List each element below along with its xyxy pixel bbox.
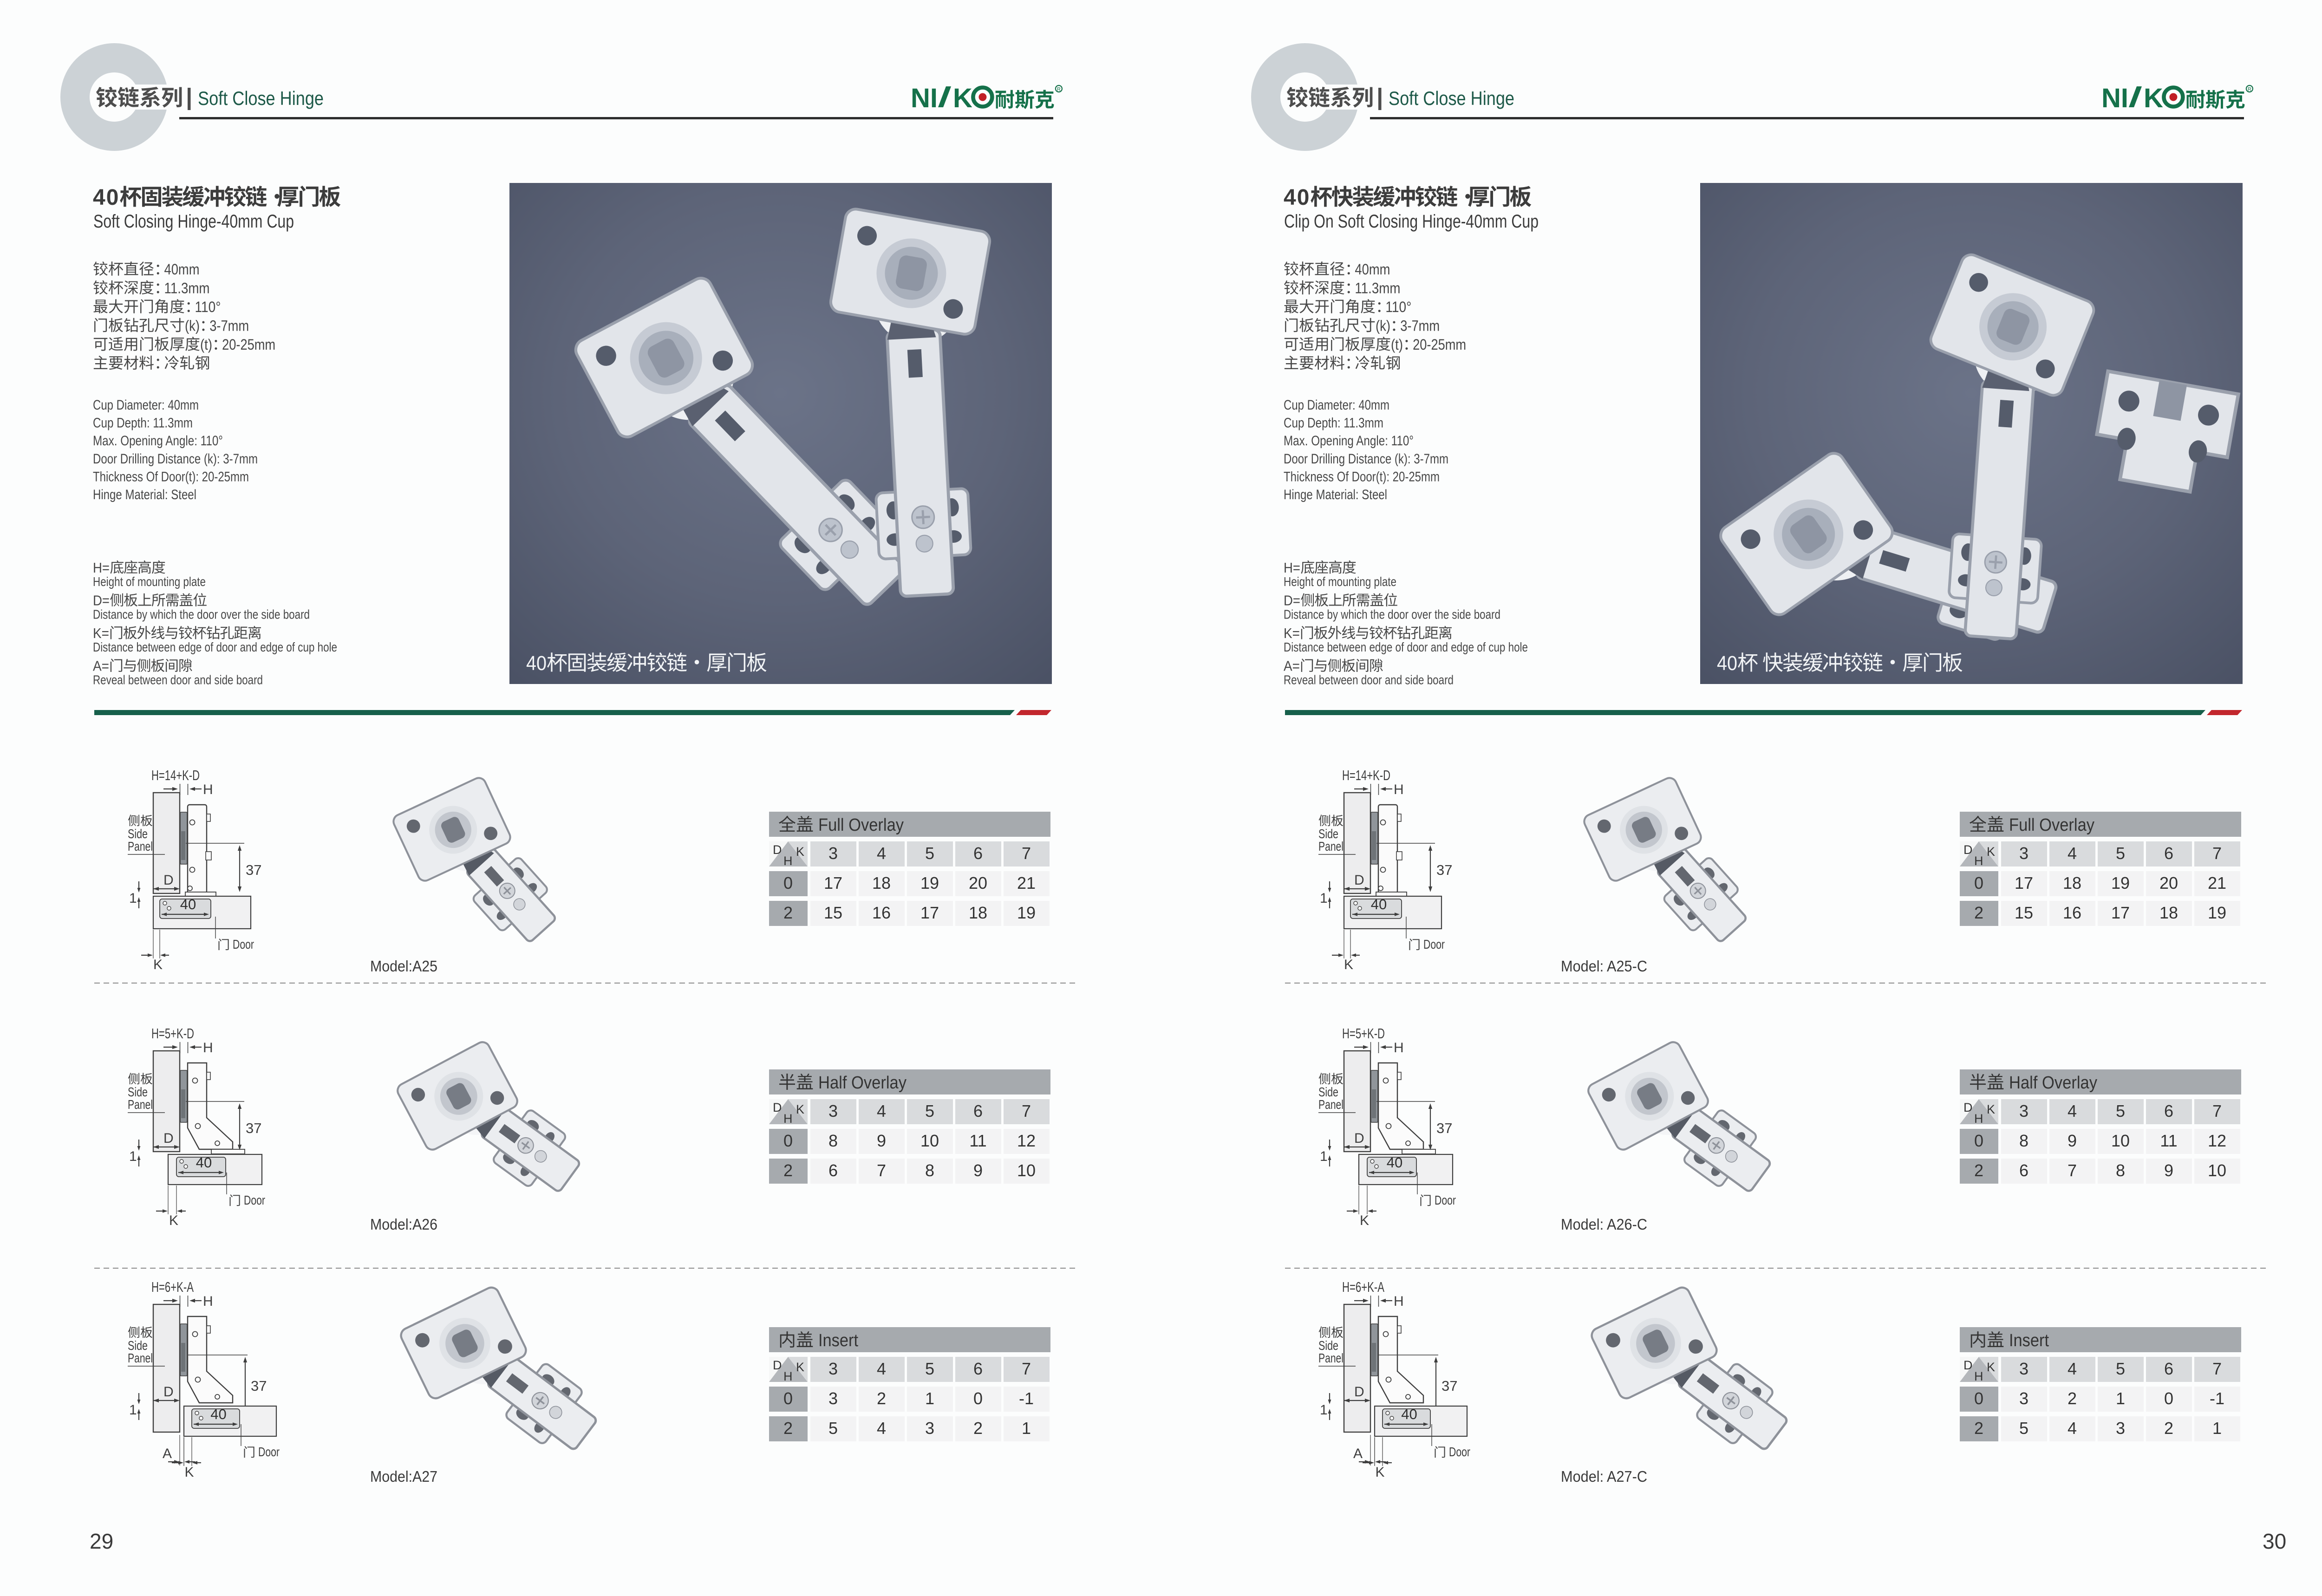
svg-text:19: 19 [2111,873,2130,892]
svg-text:5: 5 [925,1359,934,1378]
svg-text:3: 3 [2019,1101,2028,1120]
svg-text:6: 6 [973,1359,983,1378]
svg-text:10: 10 [1017,1161,1036,1180]
svg-text:Cup Diameter: 40mm: Cup Diameter: 40mm [1284,397,1389,413]
svg-text:2: 2 [783,1161,793,1180]
svg-text:5: 5 [828,1419,838,1438]
svg-text:Half Overlay: Half Overlay [2009,1073,2097,1093]
svg-text:20: 20 [969,873,987,892]
svg-text:0: 0 [1974,1131,1983,1150]
svg-text:40: 40 [180,896,196,912]
svg-text:H: H [783,854,793,868]
svg-text:H: H [203,1040,213,1055]
svg-text:0: 0 [1974,873,1983,892]
svg-text:0: 0 [973,1389,983,1408]
svg-text:Soft Close Hinge: Soft Close Hinge [198,87,324,109]
svg-text:Distance by which the door ove: Distance by which the door over the side… [93,607,310,622]
svg-text:Distance by which the door ove: Distance by which the door over the side… [1284,607,1500,622]
svg-text:H: H [1974,1369,1983,1383]
svg-text:10: 10 [920,1131,939,1150]
svg-text:3-7mm: 3-7mm [1400,318,1440,334]
svg-text:6: 6 [828,1161,838,1180]
svg-text:9: 9 [2164,1161,2173,1180]
svg-text:37: 37 [1441,1378,1457,1394]
svg-text:17: 17 [2111,903,2130,922]
svg-text:K: K [153,957,163,972]
svg-text:K: K [169,1213,178,1228]
svg-text:1: 1 [1320,1402,1328,1418]
svg-text:37: 37 [251,1378,267,1394]
svg-text:4: 4 [2068,1419,2077,1438]
svg-text:7: 7 [877,1161,886,1180]
svg-text:15: 15 [2015,903,2033,922]
svg-text:Distance between edge of door: Distance between edge of door and edge o… [1284,640,1528,654]
svg-text:(k): (k) [185,318,200,334]
svg-text:A: A [163,1446,172,1461]
svg-text:D: D [1963,1358,1973,1372]
svg-text:8: 8 [2019,1131,2028,1150]
svg-text:40: 40 [1401,1406,1417,1422]
svg-text:3: 3 [828,1389,838,1408]
svg-text:21: 21 [2208,873,2226,892]
svg-text:Soft Close Hinge: Soft Close Hinge [1389,87,1514,109]
svg-text:1: 1 [925,1389,934,1408]
svg-text:K: K [796,1102,804,1116]
svg-text:A=: A= [1284,658,1300,674]
svg-text:D=: D= [1284,593,1300,609]
svg-text:7: 7 [2212,844,2222,863]
svg-text:Panel: Panel [128,839,153,853]
svg-text:0: 0 [783,873,793,892]
svg-text:H=: H= [1284,560,1300,576]
svg-text:8: 8 [828,1131,838,1150]
svg-text:H: H [1974,854,1983,868]
svg-text:5: 5 [2116,1101,2125,1120]
svg-text:K: K [1987,1360,1995,1374]
svg-text:11.3mm: 11.3mm [164,280,210,297]
svg-text:2: 2 [2164,1419,2173,1438]
svg-text:Insert: Insert [818,1331,858,1350]
svg-text:H: H [783,1369,793,1383]
svg-text:11.3mm: 11.3mm [1355,280,1400,297]
svg-text:110°: 110° [195,299,221,315]
svg-text:1: 1 [129,891,137,906]
svg-text:40mm: 40mm [1355,261,1390,278]
svg-text:H=: H= [93,560,110,576]
svg-text:9: 9 [877,1131,886,1150]
svg-text:18: 18 [2063,873,2081,892]
svg-text:H: H [1394,782,1404,797]
svg-text:Distance between edge of door: Distance between edge of door and edge o… [93,640,337,654]
svg-text:Full Overlay: Full Overlay [2009,815,2094,835]
svg-text:Panel: Panel [1318,839,1344,853]
svg-text:Hinge Material: Steel: Hinge Material: Steel [93,487,196,502]
svg-text:6: 6 [973,844,983,863]
svg-text:4: 4 [877,1419,886,1438]
svg-text:17: 17 [2015,873,2033,892]
svg-text:(t): (t) [200,336,212,353]
svg-text:2: 2 [2068,1389,2077,1408]
svg-text:40: 40 [1371,896,1387,912]
svg-text:21: 21 [1017,873,1036,892]
svg-text:19: 19 [1017,903,1036,922]
svg-text:Door: Door [244,1193,265,1207]
svg-text:1: 1 [2212,1419,2222,1438]
svg-text:4: 4 [877,844,886,863]
svg-text:Door: Door [1449,1445,1470,1459]
svg-text:19: 19 [920,873,939,892]
svg-text:H=5+K-D: H=5+K-D [151,1025,194,1042]
svg-text:D: D [1963,843,1973,857]
svg-text:9: 9 [2068,1131,2077,1150]
svg-text:Panel: Panel [128,1097,153,1112]
svg-text:K: K [953,83,972,113]
svg-text:H: H [203,1294,213,1309]
svg-text:1: 1 [2116,1389,2125,1408]
svg-text:H: H [1394,1040,1404,1055]
svg-text:20: 20 [2159,873,2178,892]
svg-text:20-25mm: 20-25mm [1413,336,1466,353]
svg-text:-1: -1 [1019,1389,1034,1408]
svg-text:K: K [796,1360,804,1374]
svg-text:2: 2 [1974,1419,1983,1438]
svg-text:Thickness Of Door(t): 20-25mm: Thickness Of Door(t): 20-25mm [93,469,249,484]
svg-text:NI: NI [911,83,938,113]
svg-text:12: 12 [1017,1131,1036,1150]
svg-text:D: D [773,1358,782,1372]
svg-text:1: 1 [1320,891,1328,906]
svg-text:3: 3 [828,1359,838,1378]
svg-text:A=: A= [93,658,109,674]
svg-text:9: 9 [973,1161,983,1180]
svg-text:Thickness Of Door(t): 20-25mm: Thickness Of Door(t): 20-25mm [1284,469,1440,484]
svg-text:A: A [1353,1446,1363,1461]
svg-text:5: 5 [925,844,934,863]
svg-text:5: 5 [2116,844,2125,863]
svg-text:3: 3 [2019,1359,2028,1378]
svg-text:D: D [163,873,174,888]
svg-text:Clip On Soft Closing Hinge-40m: Clip On Soft Closing Hinge-40mm Cup [1284,211,1539,232]
svg-text:H=6+K-A: H=6+K-A [1342,1279,1384,1295]
svg-text:3: 3 [828,844,838,863]
svg-text:3: 3 [2019,844,2028,863]
svg-text:40: 40 [1387,1154,1402,1171]
svg-text:5: 5 [2019,1419,2028,1438]
svg-text:Cup Depth: 11.3mm: Cup Depth: 11.3mm [1284,416,1383,431]
svg-text:K: K [185,1465,194,1480]
svg-text:K: K [1360,1213,1369,1228]
svg-text:40: 40 [1284,185,1310,210]
svg-text:7: 7 [2212,1101,2222,1120]
svg-text:0: 0 [783,1131,793,1150]
svg-text:37: 37 [1436,862,1452,878]
svg-text:4: 4 [2068,844,2077,863]
svg-text:1: 1 [1022,1419,1031,1438]
svg-text:40: 40 [196,1154,212,1171]
svg-text:Door Drilling Distance (k): 3-: Door Drilling Distance (k): 3-7mm [93,451,258,467]
svg-text:(t): (t) [1391,336,1403,353]
svg-text:18: 18 [2159,903,2178,922]
svg-text:Model:A27: Model:A27 [370,1468,437,1485]
svg-text:40: 40 [210,1406,226,1422]
svg-text:Panel: Panel [128,1351,153,1365]
svg-text:H=6+K-A: H=6+K-A [151,1279,194,1295]
svg-text:Max. Opening Angle: 110°: Max. Opening Angle: 110° [1284,433,1414,449]
svg-text:37: 37 [246,862,261,878]
svg-text:H=5+K-D: H=5+K-D [1342,1025,1385,1042]
svg-text:(k): (k) [1376,318,1390,334]
svg-text:37: 37 [1436,1120,1452,1136]
svg-text:Model: A25-C: Model: A25-C [1561,958,1647,975]
svg-text:3: 3 [2116,1419,2125,1438]
svg-text:D: D [1963,1101,1973,1114]
svg-text:4: 4 [2068,1359,2077,1378]
svg-text:8: 8 [2116,1161,2125,1180]
svg-text:K=: K= [1284,625,1300,641]
svg-text:K: K [1376,1465,1385,1480]
svg-text:K: K [2144,83,2163,113]
svg-text:6: 6 [2164,1359,2173,1378]
svg-text:1: 1 [129,1402,137,1418]
svg-text:1: 1 [129,1149,137,1164]
svg-text:110°: 110° [1385,299,1411,315]
svg-text:Hinge Material: Steel: Hinge Material: Steel [1284,487,1387,502]
svg-text:17: 17 [920,903,939,922]
svg-text:Door: Door [258,1445,280,1459]
svg-text:D: D [163,1131,174,1146]
svg-text:Model: A26-C: Model: A26-C [1561,1216,1647,1233]
svg-text:D: D [163,1384,174,1400]
svg-text:H: H [1974,1112,1983,1126]
svg-text:2: 2 [877,1389,886,1408]
svg-text:40mm: 40mm [164,261,200,278]
svg-text:7: 7 [1022,1101,1031,1120]
svg-text:D: D [773,1101,782,1114]
svg-text:D: D [1354,873,1364,888]
svg-text:2: 2 [1974,1161,1983,1180]
svg-text:12: 12 [2208,1131,2226,1150]
svg-text:4: 4 [2068,1101,2077,1120]
svg-text:7: 7 [2068,1161,2077,1180]
svg-text:16: 16 [2063,903,2081,922]
svg-text:Door Drilling Distance (k): 3-: Door Drilling Distance (k): 3-7mm [1284,451,1448,467]
svg-text:Insert: Insert [2009,1331,2049,1350]
svg-text:7: 7 [2212,1359,2222,1378]
svg-text:11: 11 [2160,1131,2177,1150]
svg-text:0: 0 [1974,1389,1983,1408]
svg-text:Soft Closing Hinge-40mm Cup: Soft Closing Hinge-40mm Cup [93,211,294,232]
svg-text:17: 17 [824,873,842,892]
svg-text:NI: NI [2101,83,2128,113]
svg-text:H: H [203,782,213,797]
svg-text:Door: Door [1423,937,1445,951]
svg-text:4: 4 [877,1359,886,1378]
svg-text:Panel: Panel [1318,1097,1344,1112]
svg-text:Half Overlay: Half Overlay [818,1073,907,1093]
svg-text:K: K [1987,845,1995,859]
svg-text:3-7mm: 3-7mm [209,318,249,334]
svg-text:K: K [1987,1102,1995,1116]
svg-text:4: 4 [877,1101,886,1120]
svg-text:15: 15 [824,903,842,922]
svg-text:5: 5 [925,1101,934,1120]
svg-text:6: 6 [2164,1101,2173,1120]
svg-text:5: 5 [2116,1359,2125,1378]
svg-text:3: 3 [2019,1389,2028,1408]
svg-text:3: 3 [828,1101,838,1120]
svg-text:19: 19 [2208,903,2226,922]
svg-text:40: 40 [1717,652,1737,675]
svg-text:30: 30 [2263,1529,2286,1553]
svg-text:D: D [773,843,782,857]
svg-text:3: 3 [925,1419,934,1438]
svg-text:18: 18 [872,873,891,892]
svg-text:K: K [796,845,804,859]
svg-text:6: 6 [2019,1161,2028,1180]
svg-text:Height of mounting plate: Height of mounting plate [93,574,206,589]
svg-text:K: K [1344,957,1353,972]
svg-text:18: 18 [969,903,987,922]
svg-text:Panel: Panel [1318,1351,1344,1365]
svg-text:6: 6 [973,1101,983,1120]
svg-text:10: 10 [2111,1131,2130,1150]
svg-text:2: 2 [973,1419,983,1438]
svg-text:29: 29 [90,1529,113,1553]
svg-text:Reveal between door and side b: Reveal between door and side board [93,673,263,687]
svg-text:Cup Depth: 11.3mm: Cup Depth: 11.3mm [93,416,193,431]
svg-text:Door: Door [233,937,254,951]
svg-text:11: 11 [969,1131,986,1150]
svg-text:2: 2 [783,903,793,922]
svg-text:Max. Opening Angle: 110°: Max. Opening Angle: 110° [93,433,223,449]
svg-text:H=14+K-D: H=14+K-D [1342,767,1390,783]
svg-text:7: 7 [1022,1359,1031,1378]
svg-text:Full Overlay: Full Overlay [818,815,904,835]
svg-text:Model: A27-C: Model: A27-C [1561,1468,1647,1485]
svg-text:0: 0 [783,1389,793,1408]
svg-text:2: 2 [783,1419,793,1438]
svg-text:Model:A25: Model:A25 [370,958,437,975]
svg-text:D: D [1354,1384,1364,1400]
svg-text:D: D [1354,1131,1364,1146]
svg-text:Reveal between door and side b: Reveal between door and side board [1284,673,1454,687]
svg-text:R: R [2248,87,2251,92]
svg-text:-1: -1 [2210,1389,2224,1408]
svg-text:0: 0 [2164,1389,2173,1408]
svg-text:H: H [1394,1294,1404,1309]
svg-text:Cup Diameter: 40mm: Cup Diameter: 40mm [93,397,199,413]
svg-text:37: 37 [246,1120,261,1136]
svg-text:8: 8 [925,1161,934,1180]
svg-text:1: 1 [1320,1149,1328,1164]
svg-text:H=14+K-D: H=14+K-D [151,767,200,783]
svg-text:2: 2 [1974,903,1983,922]
svg-text:Door: Door [1435,1193,1456,1207]
svg-text:Model:A26: Model:A26 [370,1216,437,1233]
svg-text:K=: K= [93,625,109,641]
svg-text:6: 6 [2164,844,2173,863]
svg-text:10: 10 [2208,1161,2226,1180]
svg-text:D=: D= [93,593,110,609]
svg-text:Height of mounting plate: Height of mounting plate [1284,574,1396,589]
svg-text:20-25mm: 20-25mm [222,336,275,353]
svg-text:40: 40 [93,185,119,210]
svg-text:7: 7 [1022,844,1031,863]
svg-text:16: 16 [872,903,891,922]
svg-text:40: 40 [526,652,547,675]
svg-text:R: R [1057,87,1061,92]
svg-text:H: H [783,1112,793,1126]
